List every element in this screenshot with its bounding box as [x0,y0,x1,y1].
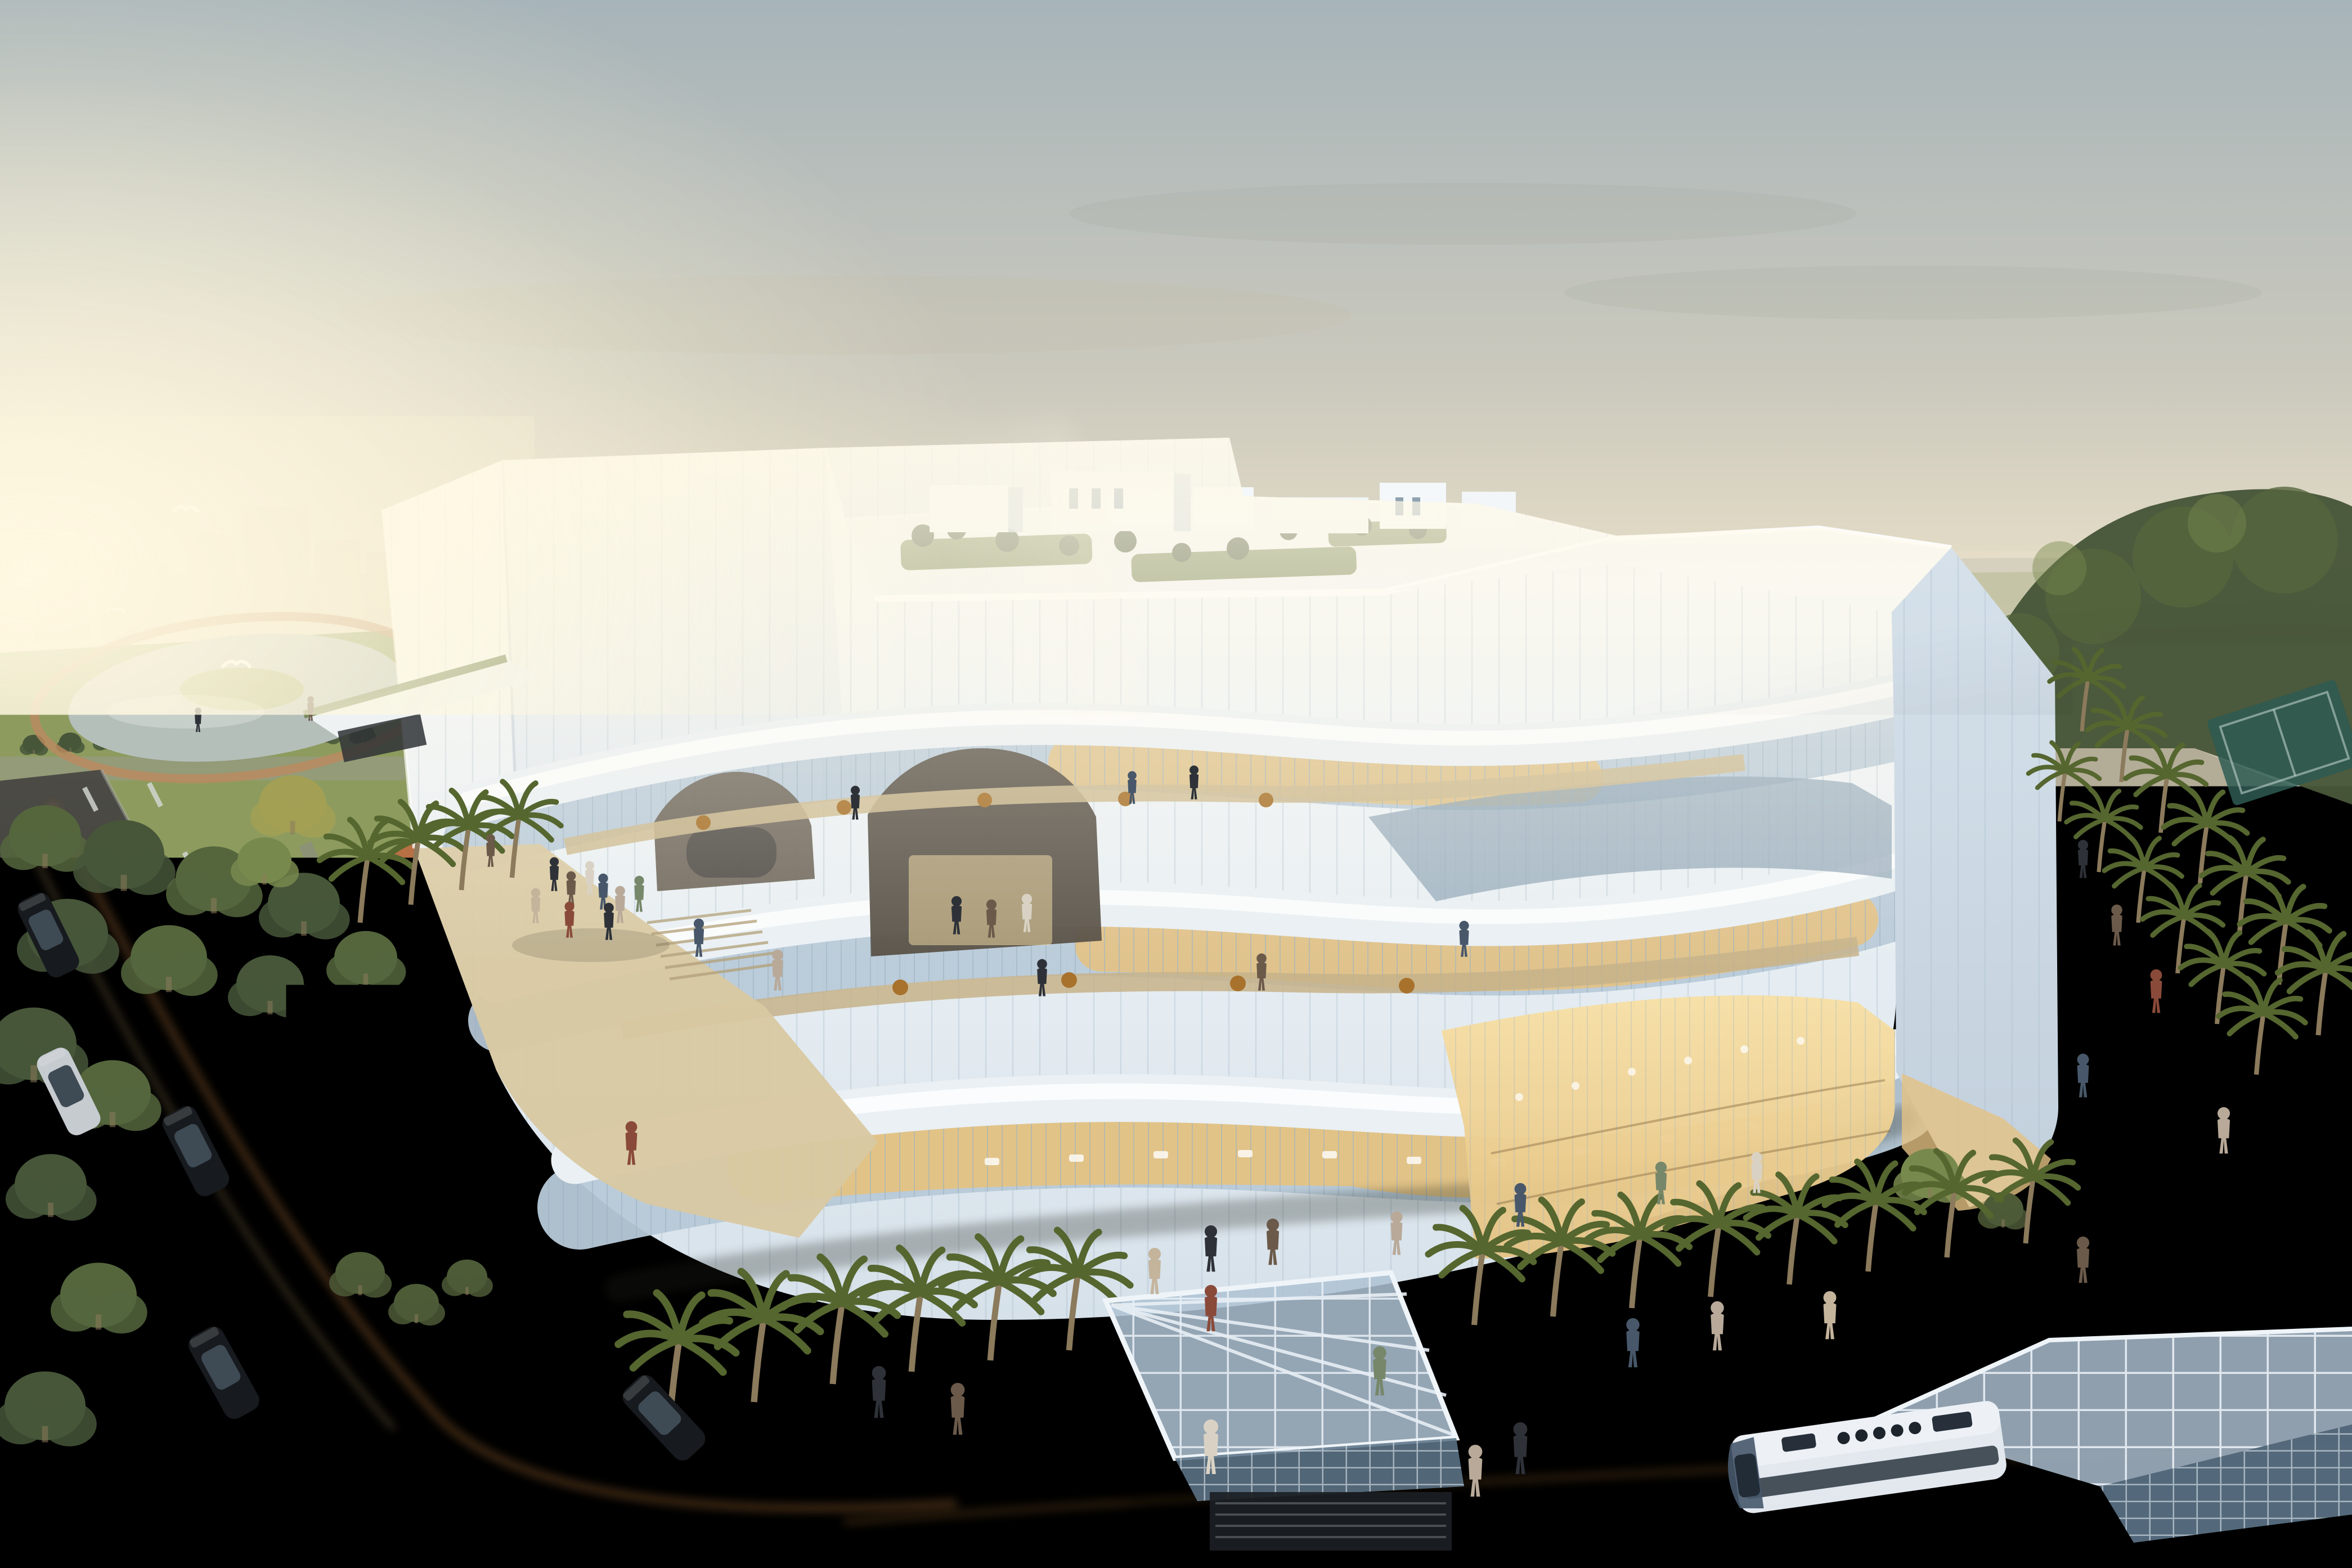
architectural-rendering [0,0,2352,1568]
rendering-stage [0,0,2352,1568]
corner-vignette [0,0,2352,1568]
